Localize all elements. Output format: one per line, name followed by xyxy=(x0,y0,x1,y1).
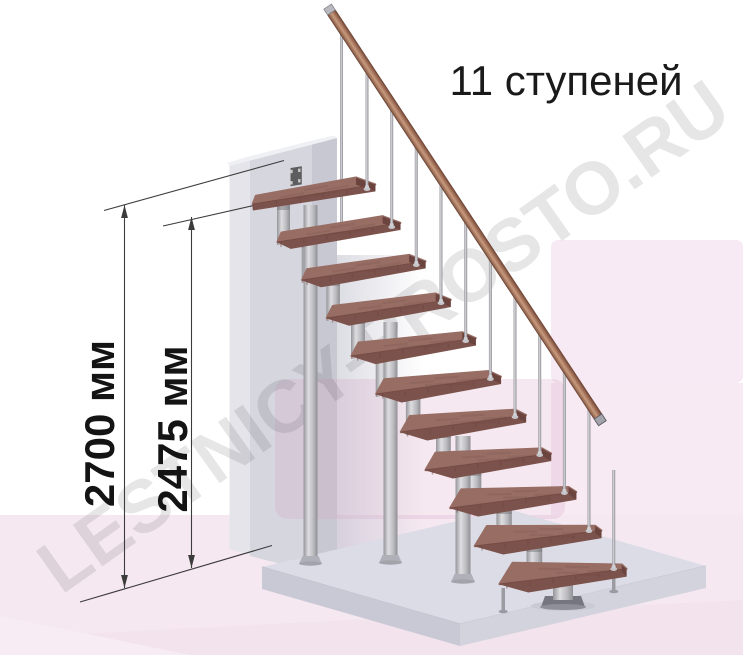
svg-text:2700 мм: 2700 мм xyxy=(76,340,123,507)
svg-text:11 ступеней: 11 ступеней xyxy=(449,57,682,104)
svg-text:2475 мм: 2475 мм xyxy=(149,345,196,512)
